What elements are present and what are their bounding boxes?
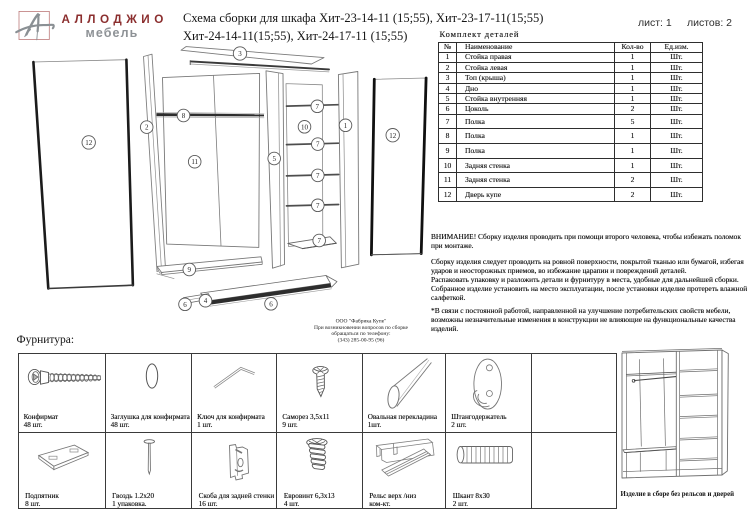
svg-text:12: 12 — [389, 132, 397, 140]
svg-text:7: 7 — [316, 103, 320, 111]
svg-text:2: 2 — [145, 124, 149, 132]
svg-text:6: 6 — [183, 301, 187, 309]
svg-text:12: 12 — [85, 139, 93, 147]
svg-text:11: 11 — [191, 158, 198, 166]
svg-text:4: 4 — [204, 297, 208, 305]
svg-text:7: 7 — [316, 141, 320, 149]
svg-text:3: 3 — [238, 50, 242, 58]
svg-text:6: 6 — [269, 300, 273, 308]
svg-text:7: 7 — [316, 172, 320, 180]
svg-text:1: 1 — [344, 122, 348, 130]
svg-text:7: 7 — [316, 202, 320, 210]
svg-text:9: 9 — [188, 266, 192, 274]
svg-text:10: 10 — [301, 123, 309, 131]
svg-text:7: 7 — [317, 237, 321, 245]
svg-text:5: 5 — [272, 155, 276, 163]
svg-text:8: 8 — [182, 112, 186, 120]
